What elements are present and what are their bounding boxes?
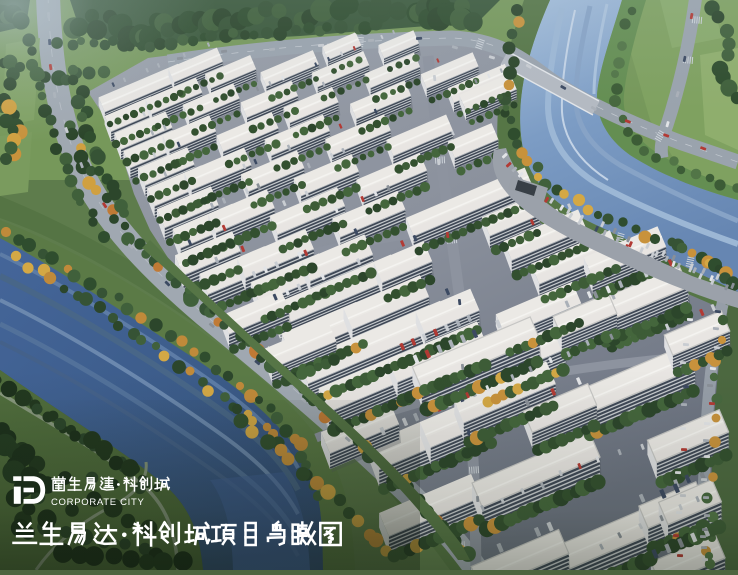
svg-text:CORPORATE CITY: CORPORATE CITY bbox=[51, 497, 145, 508]
